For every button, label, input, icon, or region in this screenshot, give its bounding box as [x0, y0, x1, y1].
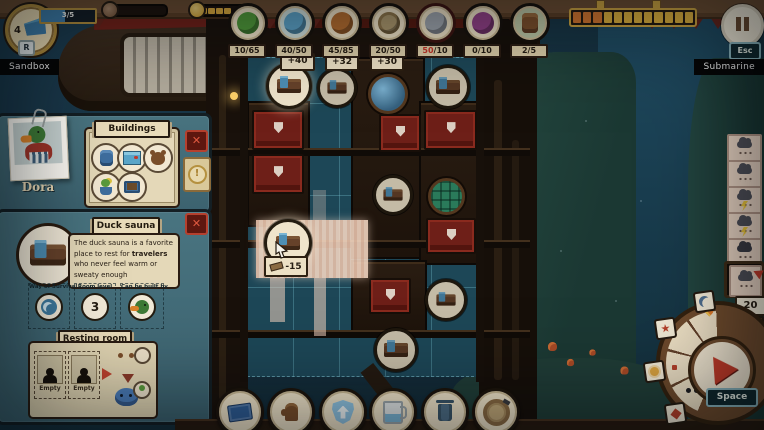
coin-icon: [188, 1, 206, 19]
quest-progress-text: 3/5: [41, 11, 95, 19]
weather-card-rain: [727, 134, 762, 163]
sauna-build-spot[interactable]: [317, 68, 357, 108]
duck-beak: [20, 135, 31, 142]
duck-eye: [37, 131, 39, 133]
sauna-build-spot[interactable]: [373, 175, 413, 215]
stat-room-level: Room level 3: [74, 283, 116, 329]
pause-button[interactable]: [721, 4, 764, 47]
coral: [567, 359, 574, 366]
sun-badge: [643, 360, 667, 384]
resident-slot-2[interactable]: Empty: [68, 351, 100, 399]
resource-cabbage[interactable]: 10/65: [228, 3, 266, 58]
aquarium-icon: [123, 151, 141, 165]
building-option-crate[interactable]: [117, 172, 147, 202]
rain-cloud-icon: [737, 141, 752, 148]
upgrade-button[interactable]: [319, 388, 367, 430]
furnace-tile[interactable]: [252, 154, 304, 194]
play-hotkey: Space: [706, 388, 758, 407]
build-cost-value: -15: [285, 262, 301, 272]
coral: [548, 342, 557, 351]
flag-hotkey: R: [18, 40, 35, 56]
arrow-down-icon: [122, 374, 134, 383]
moth-icon: [670, 408, 681, 419]
plank-icon: [270, 261, 284, 271]
potted-plant-icon: [100, 187, 112, 195]
close-buildings-button[interactable]: ✕: [185, 130, 208, 152]
blueprint-icon: [227, 402, 253, 422]
close-tooltip-button[interactable]: ✕: [185, 213, 208, 235]
particle: [560, 250, 562, 252]
bear-icon: [151, 152, 165, 165]
resident-silhouette-icon: [43, 368, 57, 383]
crate-icon: [124, 181, 140, 193]
furnace-tile[interactable]: [369, 278, 411, 314]
weather-card-rain: [727, 160, 762, 189]
weather-card-storm: [727, 212, 762, 241]
sauna-icon: [327, 82, 346, 93]
pipe: [512, 140, 519, 380]
jar-icon: [383, 401, 403, 424]
porthole-window: [428, 178, 465, 215]
blueprint-button[interactable]: [216, 388, 264, 430]
flag-count: 4: [14, 25, 21, 36]
rope-icon: [483, 399, 510, 426]
sauna-build-spot[interactable]: [374, 328, 418, 372]
submarine-right-wall: [479, 18, 537, 430]
duck-shirt: [29, 152, 48, 164]
shield-up-icon: [332, 400, 354, 424]
mouse-cursor: [275, 241, 289, 259]
stat-way-of-survival: Way of Survival: [28, 283, 70, 329]
guest-badge: [134, 347, 151, 364]
quest-progress-bar: 3/5: [39, 8, 97, 24]
bark-icon: [331, 12, 353, 34]
pipe: [219, 55, 226, 400]
lamp: [230, 92, 238, 100]
portrait-photo: [13, 121, 63, 165]
moon-icon: [698, 295, 710, 307]
furnace-tile[interactable]: [424, 110, 477, 150]
trash-icon: [438, 404, 452, 421]
game-screen: +40 +32 +30 -15 4 R 3/5 10/65: [0, 0, 764, 430]
support-post: [240, 57, 248, 382]
arrow-right-icon: [102, 368, 112, 380]
storm-cloud-icon: [737, 219, 752, 226]
moon-badge: [693, 290, 717, 314]
star-icon: ★: [660, 322, 671, 334]
alert-button[interactable]: !: [183, 157, 211, 192]
coin-pip: [216, 8, 223, 14]
furnace-tile[interactable]: [379, 114, 421, 152]
furnace-tile[interactable]: [252, 110, 304, 150]
sun-icon: [649, 366, 659, 376]
star-badge: ★: [654, 317, 678, 341]
character-name: Dora: [6, 180, 70, 194]
support-post: [476, 57, 484, 382]
sauna-icon: [383, 189, 402, 200]
sauna-icon: [30, 245, 66, 266]
water-barrel-icon: [100, 150, 113, 166]
storm-cloud-icon: [737, 193, 752, 200]
building-option-bear[interactable]: [143, 143, 173, 173]
play-icon: [713, 355, 739, 385]
resource-dye[interactable]: 0/10: [463, 3, 501, 58]
build-cost-tag: -15: [264, 256, 308, 277]
demolish-hand-button[interactable]: [267, 388, 315, 430]
resource-planks[interactable]: 20/50: [369, 3, 407, 58]
delete-button[interactable]: [421, 388, 469, 430]
sauna-icon: [384, 343, 408, 357]
zone-label-right: Submarine: [694, 59, 764, 75]
particle: [615, 300, 617, 302]
hand-icon: [285, 403, 298, 421]
metal-icon: [425, 12, 447, 34]
resource-metal[interactable]: 50/10: [416, 3, 454, 58]
weather-card-storm: [727, 186, 762, 215]
furnace-tile[interactable]: [426, 218, 476, 254]
particle: [585, 120, 587, 122]
placement-preview-leg: [270, 278, 285, 322]
dye-icon: [472, 12, 494, 34]
rope-coil-button[interactable]: [472, 388, 520, 430]
zone-label-left: Sandbox: [0, 59, 59, 75]
sauna-build-spot[interactable]: [425, 279, 467, 321]
resource-barrel[interactable]: 2/5: [510, 3, 548, 58]
barrel-icon: [522, 13, 538, 33]
heavy-rain-cloud-icon: [737, 245, 752, 252]
coral: [620, 366, 628, 374]
placement-preview-leg: [314, 278, 326, 336]
sauna-build-spot[interactable]: [426, 65, 470, 109]
resident-slot-1[interactable]: Empty: [34, 351, 66, 399]
sauna-icon: [277, 79, 301, 93]
crew-icon: [101, 1, 119, 19]
stat-built-by: Can be built by: [120, 283, 164, 329]
resource-fish[interactable]: 40/50: [275, 3, 313, 58]
moth-badge: [664, 402, 688, 426]
tooltip-description: The duck sauna is a favorite place to re…: [68, 233, 180, 289]
room-level-value: 3: [81, 293, 109, 321]
pause-icon: [736, 17, 741, 31]
buildings-title: Buildings: [94, 120, 170, 138]
sauna-icon: [436, 294, 455, 305]
resident-silhouette-icon: [77, 368, 91, 383]
particle: [640, 200, 642, 202]
porthole-window: [368, 74, 408, 114]
day-timeline: [569, 8, 697, 27]
coin-pip: [208, 8, 215, 14]
coral: [589, 349, 595, 355]
resource-bark[interactable]: 45/85: [322, 3, 360, 58]
sauna-icon: [436, 80, 460, 94]
duck-head-icon: [135, 300, 149, 314]
rain-cloud-icon: [737, 167, 752, 174]
planks-icon: [378, 12, 400, 34]
cabbage-icon: [237, 12, 259, 34]
creature-badge: [133, 381, 151, 399]
fish-icon: [284, 12, 306, 34]
water-jar-button[interactable]: [369, 388, 417, 430]
pause-hotkey: Esc: [729, 42, 761, 60]
placement-preview-leg: [313, 190, 326, 220]
exclamation-icon: !: [188, 165, 207, 184]
wave-icon: [41, 299, 57, 315]
